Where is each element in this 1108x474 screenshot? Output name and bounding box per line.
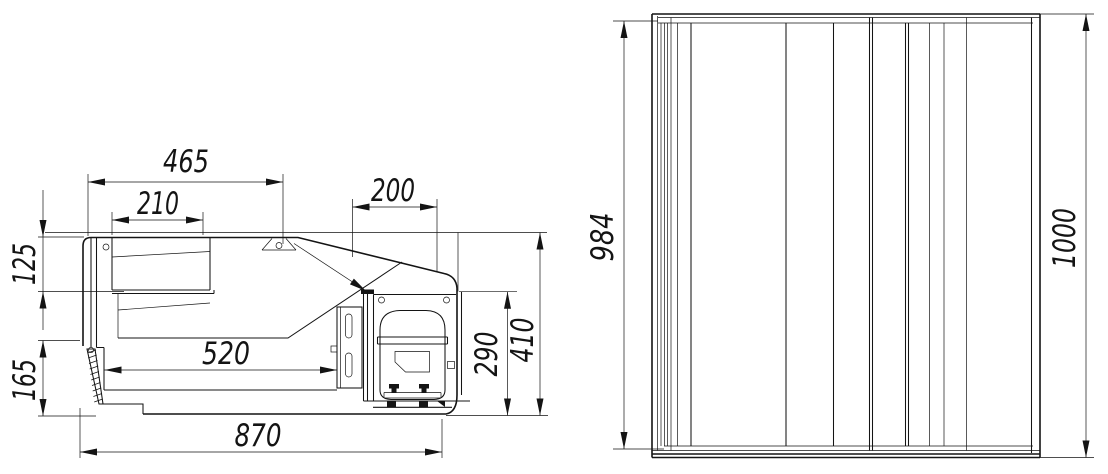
bracket-hole — [276, 243, 282, 249]
front-flap — [87, 347, 103, 404]
compressor-band — [378, 337, 448, 344]
base-step — [99, 404, 143, 414]
dim-label-210: 210 — [137, 186, 179, 222]
dimension-210: 210 — [112, 186, 203, 235]
cabinet-outline — [83, 238, 457, 415]
side-view: 465 210 200 125 — [7, 144, 548, 458]
front-top-bottom-bands — [652, 18, 1040, 451]
duct-box — [112, 238, 214, 294]
left-frame-cluster — [658, 16, 678, 451]
side-dimensions: 465 210 200 125 — [7, 144, 548, 458]
dimension-465: 465 — [88, 144, 283, 244]
grille-slot-upper — [346, 314, 353, 338]
dimension-165: 165 — [7, 341, 96, 417]
duct-inner-lines — [112, 252, 210, 339]
louvre-grille — [331, 307, 362, 388]
dimension-1000: 1000 — [1040, 14, 1094, 458]
rail-pad-left — [387, 401, 396, 407]
evaporator-duct — [112, 238, 214, 339]
compressor-rail — [384, 393, 441, 399]
dim-label-165: 165 — [7, 359, 43, 401]
grille-tab — [331, 346, 337, 352]
bay-corner-mark — [361, 290, 374, 295]
dim-label-870: 870 — [235, 418, 282, 454]
mullion-pairs — [870, 18, 909, 451]
dimension-870: 870 — [80, 408, 442, 458]
dimension-520: 520 — [105, 336, 338, 374]
rail-pad-right — [419, 401, 428, 407]
bolt-cap-right — [419, 384, 429, 389]
compressor-fitting — [448, 362, 455, 369]
front-panel-lines — [658, 16, 1032, 453]
front-outer-frame — [652, 14, 1040, 458]
grille-slot-lower — [346, 353, 353, 377]
left-wall-inner-lines — [91, 238, 104, 348]
screw-hole-left — [103, 244, 109, 250]
drawing-canvas: 465 210 200 125 — [0, 0, 1108, 474]
cabinet-top-and-right-edge — [83, 238, 457, 415]
bay-screw-left — [379, 297, 385, 303]
dim-label-290: 290 — [469, 332, 505, 377]
compressor-label-plate — [395, 352, 430, 373]
bolt-stem-left — [392, 388, 397, 393]
dimension-125: 125 — [7, 190, 124, 330]
compressor-unit — [378, 311, 455, 408]
bay-foot-mark — [437, 401, 445, 407]
dim-label-200: 200 — [371, 173, 415, 209]
technical-drawing: 465 210 200 125 — [0, 0, 1108, 474]
bay-screw-right — [444, 297, 450, 303]
dimension-410: 410 — [45, 233, 547, 416]
dim-label-984: 984 — [585, 213, 621, 262]
machine-bay — [361, 290, 470, 408]
dim-label-410: 410 — [505, 318, 541, 363]
panel-divider-lines — [691, 23, 834, 446]
bolt-cap-left — [389, 384, 399, 389]
flap-hatching — [88, 350, 103, 402]
front-view: 984 1000 — [585, 14, 1094, 458]
dim-label-1000: 1000 — [1047, 208, 1083, 268]
right-panel-lines — [930, 18, 967, 451]
bolt-stem-right — [422, 388, 427, 393]
dim-label-125: 125 — [7, 243, 43, 285]
dim-label-520: 520 — [202, 336, 250, 372]
dim-label-465: 465 — [163, 144, 209, 180]
deck-and-glass-diagonal — [118, 262, 402, 338]
front-cabinet-outline — [652, 14, 1040, 458]
